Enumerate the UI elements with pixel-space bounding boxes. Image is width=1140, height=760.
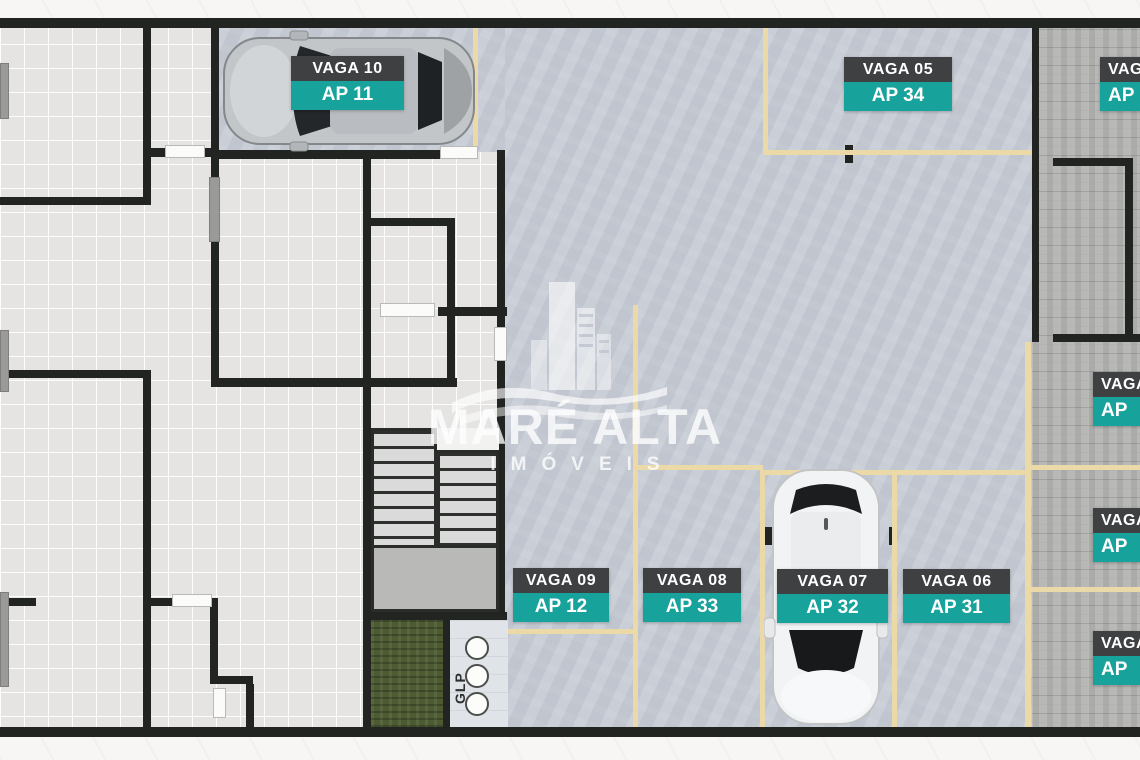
wall — [1125, 158, 1133, 342]
wall — [370, 218, 455, 226]
parking-line — [763, 28, 768, 152]
apartment-number: AP 12 — [513, 593, 609, 622]
wall — [210, 598, 218, 684]
floorplan-image: GLP — [0, 0, 1140, 760]
apartment-number: AP 32 — [777, 594, 888, 623]
apartment-number: AP 34 — [844, 82, 952, 111]
parking-space-label: VAGA 08AP 33 — [643, 568, 741, 622]
stairs-left-flight — [371, 428, 437, 548]
wall — [211, 28, 219, 158]
gas-cylinder — [465, 692, 489, 716]
apartment-number: AP — [1093, 533, 1140, 562]
wall — [246, 684, 254, 727]
parking-line — [1025, 465, 1140, 470]
door-frame — [172, 594, 212, 607]
wall — [363, 612, 507, 620]
apartment-number: AP — [1093, 397, 1140, 426]
apartment-number: AP — [1100, 82, 1140, 111]
wall — [1053, 158, 1133, 166]
vaga-number: VAGA 09 — [513, 568, 609, 593]
parking-space-label: VAGA 10AP 11 — [291, 56, 404, 110]
wall — [143, 28, 151, 200]
outside-area-bottom — [0, 735, 1140, 760]
door-frame — [213, 688, 226, 718]
outside-area-top — [0, 0, 1140, 20]
door-frame — [380, 303, 435, 317]
vaga-number: VAGA — [1093, 631, 1140, 656]
gas-cylinder — [465, 636, 489, 660]
parking-line — [1025, 342, 1031, 727]
vaga-number: VAGA — [1100, 57, 1140, 82]
parking-line — [505, 629, 635, 634]
parking-line — [892, 470, 897, 727]
apartment-number: AP 31 — [903, 594, 1010, 623]
parking-space-label: VAGA 07AP 32 — [777, 569, 888, 623]
wall — [0, 197, 151, 205]
window-marker — [0, 63, 9, 119]
vaga-number: VAGA — [1093, 372, 1140, 397]
parking-space-label: VAGAAP — [1093, 508, 1140, 562]
parking-line — [633, 465, 763, 470]
vaga-number: VAGA 05 — [844, 57, 952, 82]
window-marker — [209, 177, 220, 242]
parking-space-label: VAGA 05AP 34 — [844, 57, 952, 111]
parking-line — [1025, 587, 1140, 592]
wall — [1053, 334, 1140, 342]
apartment-number: AP 11 — [291, 81, 404, 110]
wall — [0, 18, 1140, 28]
parking-space-label: VAGAAP — [1093, 372, 1140, 426]
vaga-number: VAGA 06 — [903, 569, 1010, 594]
wall — [211, 378, 457, 387]
wall — [0, 727, 1140, 737]
vaga-number: VAGA 08 — [643, 568, 741, 593]
vaga-number: VAGA 07 — [777, 569, 888, 594]
door-frame — [494, 327, 507, 361]
wall — [210, 676, 253, 684]
grass-patch — [371, 620, 443, 727]
wall — [363, 150, 371, 727]
gas-cylinder — [465, 664, 489, 688]
vaga-number: VAGA — [1093, 508, 1140, 533]
stairs-right-flight — [437, 450, 499, 548]
vaga-number: VAGA 10 — [291, 56, 404, 81]
watermark-logo-icon — [515, 282, 635, 394]
window-marker — [0, 592, 9, 687]
wall — [0, 370, 151, 378]
wall — [443, 620, 450, 727]
parking-line — [763, 150, 1032, 155]
stairs-landing — [371, 548, 499, 612]
apartment-number: AP — [1093, 656, 1140, 685]
watermark-wave-icon — [452, 383, 667, 429]
glp-closet: GLP — [450, 620, 508, 727]
wall — [447, 218, 455, 387]
window-marker — [0, 330, 9, 392]
wall — [143, 370, 151, 727]
parking-space-label: VAGAAP — [1100, 57, 1140, 111]
parking-space-label: VAGA 06AP 31 — [903, 569, 1010, 623]
wall — [1032, 28, 1039, 342]
parking-space-label: VAGA 09AP 12 — [513, 568, 609, 622]
door-frame — [165, 145, 205, 158]
parking-space-label: VAGAAP — [1093, 631, 1140, 685]
stairs-gap — [437, 428, 499, 450]
apartment-number: AP 33 — [643, 593, 741, 622]
